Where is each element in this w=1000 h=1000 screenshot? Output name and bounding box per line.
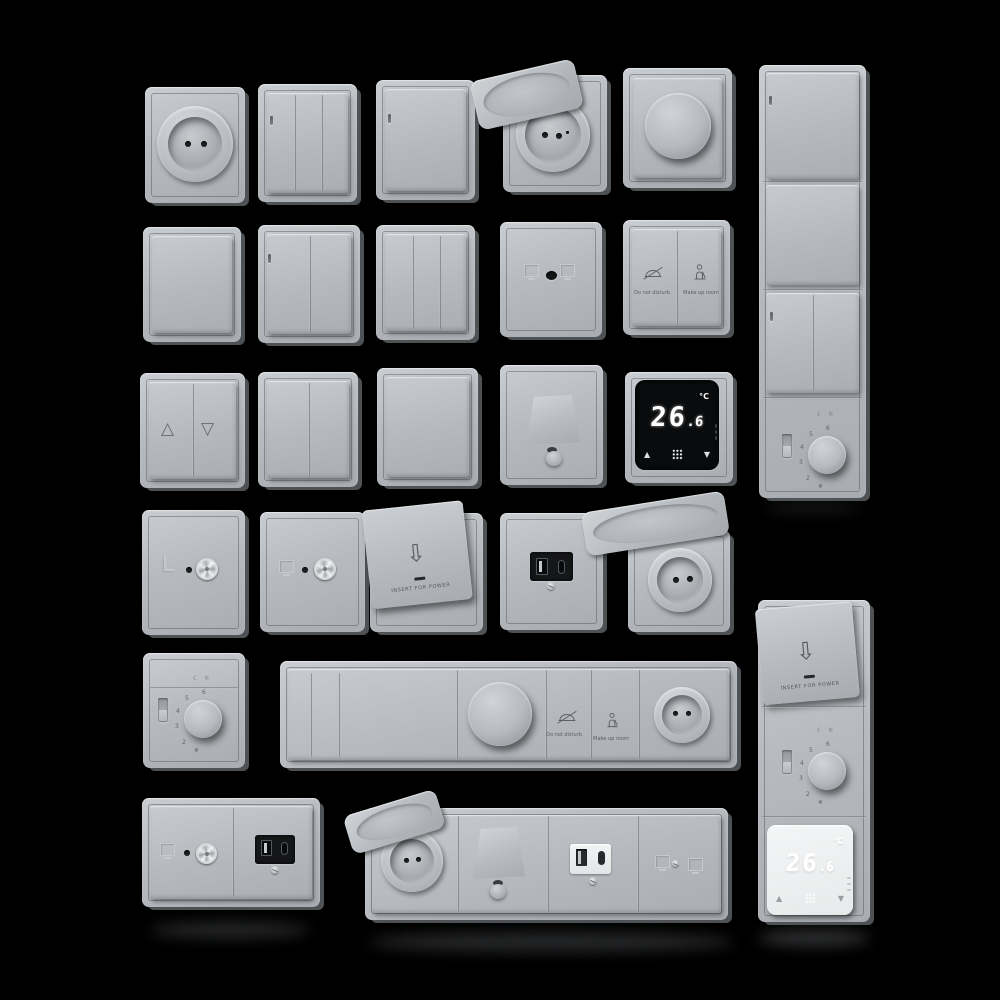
module-divider bbox=[456, 670, 458, 759]
socket-well bbox=[390, 839, 434, 883]
dial-number: 3 bbox=[799, 460, 803, 466]
insert-for-power-label: INSERT FOR POWER bbox=[370, 580, 471, 597]
monitor-icon bbox=[160, 843, 175, 856]
do-not-disturb-label: Do not disturb bbox=[631, 290, 673, 296]
cable-outlet-tongue bbox=[490, 884, 506, 899]
temp-integer: 26 bbox=[785, 849, 820, 877]
three-gang-switch-plate bbox=[376, 225, 475, 340]
make-up-room-label: Make up room bbox=[588, 736, 634, 742]
cable-outlet-plate bbox=[500, 365, 603, 485]
monitor-icon bbox=[279, 560, 294, 573]
rocker-divider bbox=[309, 236, 311, 332]
temp-up-icon: ▲ bbox=[776, 895, 782, 903]
monitor-icon bbox=[560, 264, 575, 277]
floor-reflection bbox=[150, 922, 310, 938]
socket-well bbox=[662, 695, 702, 735]
thermostat-display: °C 26.6 ▲ ▼ bbox=[635, 380, 719, 470]
dial-number: 4 bbox=[800, 445, 804, 451]
dimmer-knob bbox=[468, 682, 532, 746]
dial-number: 3 bbox=[799, 776, 803, 782]
temp-readout: 26.6 bbox=[634, 402, 720, 433]
socket-well bbox=[657, 557, 703, 603]
dial-number: 5 bbox=[809, 748, 813, 754]
rocker-divider bbox=[439, 236, 441, 329]
module-divider bbox=[763, 181, 862, 183]
indicator-slot bbox=[270, 116, 273, 125]
jack-hole bbox=[186, 567, 192, 573]
two-gang-switch-plate bbox=[258, 225, 360, 343]
temp-up-icon: ▲ bbox=[644, 451, 650, 459]
temp-down-icon: ▼ bbox=[838, 895, 844, 903]
blinds-down-icon: ▽ bbox=[201, 421, 214, 438]
module-divider bbox=[763, 289, 862, 291]
keycard-power-plate: ⇩ INSERT FOR POWER bbox=[370, 513, 483, 632]
insert-card-arrow-icon: ⇩ bbox=[795, 638, 817, 664]
dial-number: 2 bbox=[806, 476, 810, 482]
thermostat-display-white: °C 26.6 ▲ ▼ bbox=[767, 825, 853, 915]
temp-readout: 26.6 bbox=[766, 849, 854, 877]
coax-usb-double-plate bbox=[142, 798, 320, 907]
snowflake-icon: ❄ bbox=[194, 748, 199, 754]
blank-cover bbox=[152, 236, 232, 333]
side-notch bbox=[715, 424, 717, 428]
bell-slash-icon bbox=[556, 710, 578, 724]
rocker-divider bbox=[676, 231, 678, 324]
three-gang-switch-plate bbox=[258, 84, 357, 202]
thermostat-dial-knob bbox=[184, 700, 222, 738]
bell-slash-icon bbox=[642, 266, 664, 280]
coax-connector bbox=[196, 558, 218, 580]
floor-reflection bbox=[368, 932, 734, 952]
monitor-icon bbox=[655, 855, 670, 868]
screw bbox=[271, 866, 279, 874]
thermostat-dial-knob bbox=[808, 752, 846, 790]
insert-for-power-label: INSERT FOR POWER bbox=[762, 679, 859, 693]
usb-module bbox=[530, 552, 573, 581]
key-divider bbox=[310, 673, 312, 757]
screw bbox=[589, 877, 597, 885]
monitor-icon bbox=[688, 858, 703, 871]
socket-hole bbox=[686, 711, 691, 716]
dial-thermostat: ☾ ☼ 6 5 4 3 2 ❄ bbox=[780, 408, 860, 496]
module-divider bbox=[457, 816, 459, 912]
keycard-front: ⇩ INSERT FOR POWER bbox=[362, 500, 473, 609]
dial-number: 3 bbox=[175, 724, 179, 730]
usb-a-port bbox=[536, 558, 548, 575]
keycard-front: ⇩ INSERT FOR POWER bbox=[755, 601, 860, 705]
indicator-slot bbox=[770, 312, 773, 321]
snowflake-icon: ❄ bbox=[818, 484, 823, 490]
side-notch bbox=[715, 436, 717, 440]
one-gang-switch-plate bbox=[376, 80, 475, 200]
maid-icon bbox=[692, 264, 708, 281]
antenna-jack bbox=[546, 271, 557, 280]
dimmer-knob bbox=[645, 93, 711, 159]
temp-integer: 26 bbox=[649, 402, 688, 433]
insert-card-arrow-icon: ⇩ bbox=[404, 540, 427, 566]
floor-reflection bbox=[765, 503, 861, 512]
module-divider bbox=[545, 670, 547, 759]
usb-c-port bbox=[598, 851, 605, 865]
mode-slider bbox=[158, 698, 168, 722]
horizontal-multi-panel: Do not disturb Make up room bbox=[280, 661, 737, 768]
module-divider bbox=[762, 706, 866, 708]
socket-hole bbox=[185, 141, 191, 147]
socket-hole bbox=[673, 577, 679, 583]
dial-number: 2 bbox=[182, 740, 186, 746]
switch-rocker bbox=[766, 73, 859, 179]
thermostat-dial-knob bbox=[808, 436, 846, 474]
dial-number: 5 bbox=[809, 432, 813, 438]
module-divider bbox=[547, 816, 549, 912]
temp-decimal: .6 bbox=[686, 414, 704, 430]
jack-hole bbox=[302, 567, 308, 573]
module-divider bbox=[232, 808, 234, 897]
dial-thermostat-plate: ☾ ☼ 6 5 4 3 2 ❄ bbox=[143, 653, 245, 768]
module-divider bbox=[762, 816, 866, 818]
temp-unit: °C bbox=[699, 392, 709, 401]
dial-number: 5 bbox=[185, 696, 189, 702]
floor-reflection bbox=[758, 930, 870, 946]
sun-icon: ☼ bbox=[828, 412, 833, 418]
switch-rocker bbox=[267, 93, 348, 193]
module-divider bbox=[637, 816, 639, 912]
vertical-multi-panel-bottom: ⇩ INSERT FOR POWER ☾ ☼ 6 5 4 3 2 ❄ °C 26… bbox=[758, 600, 870, 922]
indicator-slot bbox=[268, 254, 271, 263]
vertical-multi-panel-top: ☾ ☼ 6 5 4 3 2 ❄ bbox=[759, 65, 866, 498]
socket-hole bbox=[542, 132, 548, 138]
temp-down-icon: ▼ bbox=[704, 451, 710, 459]
indicator-slot bbox=[388, 114, 391, 123]
moon-icon: ☾ bbox=[817, 412, 822, 418]
usb-c-port bbox=[281, 842, 288, 855]
rocker-divider bbox=[308, 383, 310, 476]
mode-slider bbox=[782, 434, 792, 458]
euro-socket-plate bbox=[145, 87, 245, 203]
switch-rocker bbox=[385, 234, 466, 331]
side-vent bbox=[847, 883, 851, 885]
module-divider bbox=[638, 670, 640, 759]
socket-hole bbox=[687, 576, 693, 582]
do-not-disturb-label: Do not disturb bbox=[542, 732, 586, 738]
socket-hole bbox=[416, 857, 421, 862]
socket-hole bbox=[201, 141, 207, 147]
sun-icon: ☼ bbox=[204, 676, 209, 682]
blinds-up-icon: △ bbox=[161, 421, 174, 438]
coax-connector bbox=[314, 558, 336, 580]
temp-decimal: .6 bbox=[818, 860, 835, 875]
jack-hole bbox=[184, 850, 190, 856]
socket-hole bbox=[404, 858, 409, 863]
module-divider bbox=[763, 397, 862, 399]
dial-number: 6 bbox=[826, 742, 830, 748]
temp-unit: °C bbox=[833, 837, 843, 846]
one-gang-blank-rocker-plate bbox=[377, 368, 478, 486]
socket-hole bbox=[556, 133, 562, 139]
snowflake-icon: ❄ bbox=[818, 800, 823, 806]
key-divider bbox=[338, 673, 340, 757]
socket-pin-hole bbox=[566, 131, 569, 134]
hotel-service-switch-plate: Do not disturb Make up room bbox=[623, 220, 730, 335]
module-divider bbox=[590, 670, 592, 759]
rocker-divider bbox=[412, 236, 414, 329]
usb-c-port bbox=[558, 560, 565, 574]
moon-icon: ☾ bbox=[817, 728, 822, 734]
maid-icon bbox=[605, 712, 620, 729]
usb-module bbox=[570, 844, 611, 874]
blank-rocker bbox=[766, 185, 859, 285]
digital-thermostat-black-plate: °C 26.6 ▲ ▼ bbox=[625, 372, 733, 483]
usb-a-port bbox=[576, 849, 587, 866]
make-up-room-label: Make up room bbox=[679, 290, 723, 296]
monitor-icon bbox=[524, 264, 539, 277]
dial-thermostat: ☾ ☼ 6 5 4 3 2 ❄ bbox=[780, 724, 860, 812]
rocker-divider bbox=[812, 295, 814, 391]
side-vent bbox=[847, 877, 851, 879]
dots-grid-icon bbox=[805, 893, 816, 904]
cable-outlet-spout bbox=[526, 395, 580, 453]
rotary-dimmer-plate bbox=[623, 68, 732, 188]
socket-hole bbox=[673, 711, 678, 716]
dial-thermostat: ☾ ☼ 6 5 4 3 2 ❄ bbox=[156, 672, 236, 760]
card-led-slot bbox=[804, 675, 815, 679]
switch-rocker bbox=[386, 377, 469, 477]
screw bbox=[672, 860, 679, 867]
tv-data-outlet-plate bbox=[500, 222, 602, 337]
dots-grid-icon bbox=[672, 449, 683, 460]
dial-number: 4 bbox=[176, 709, 180, 715]
cable-outlet-tongue bbox=[546, 451, 562, 466]
sun-icon: ☼ bbox=[828, 728, 833, 734]
dial-number: 4 bbox=[800, 761, 804, 767]
card-led-slot bbox=[414, 577, 425, 581]
side-notch bbox=[715, 430, 717, 434]
coax-outlet-plate bbox=[142, 510, 245, 635]
screw bbox=[547, 582, 555, 590]
blank-cover-plate bbox=[143, 227, 241, 342]
rocker-divider bbox=[192, 384, 194, 477]
indicator-slot bbox=[769, 96, 772, 105]
rocker-divider bbox=[321, 95, 323, 191]
coax-connector bbox=[196, 843, 217, 864]
usb-a-port bbox=[261, 840, 272, 856]
moon-icon: ☾ bbox=[193, 676, 198, 682]
socket-well bbox=[168, 117, 222, 171]
mode-slider bbox=[782, 750, 792, 774]
corner-icon bbox=[164, 556, 174, 571]
shutter-switch-plate: △ ▽ bbox=[140, 373, 245, 488]
switch-rocker bbox=[385, 89, 466, 191]
rocker-divider bbox=[294, 95, 296, 191]
dial-number: 6 bbox=[826, 426, 830, 432]
coax-outlet-plate bbox=[260, 512, 365, 632]
two-gang-switch-plate bbox=[258, 372, 358, 487]
usb-module bbox=[255, 835, 295, 864]
dial-number: 2 bbox=[806, 792, 810, 798]
dial-number: 6 bbox=[202, 690, 206, 696]
side-vent bbox=[847, 889, 851, 891]
